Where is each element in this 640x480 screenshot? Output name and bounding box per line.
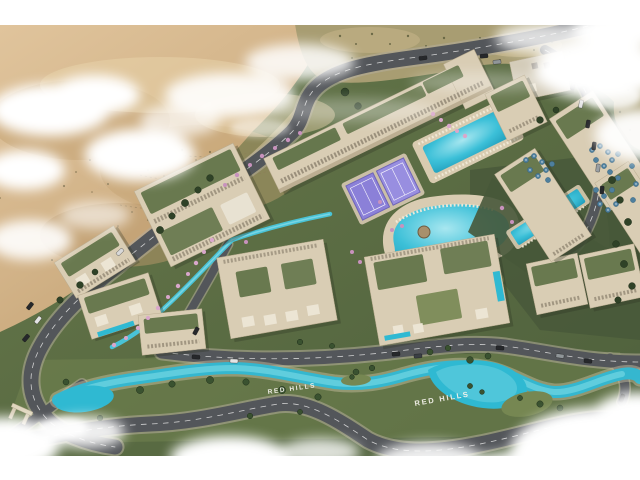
render-canvas: Red Hills [0,0,640,480]
pool-island-bar [418,226,430,238]
top-margin [0,0,640,25]
aerial-masterplan-render: Red Hills [0,0,640,480]
